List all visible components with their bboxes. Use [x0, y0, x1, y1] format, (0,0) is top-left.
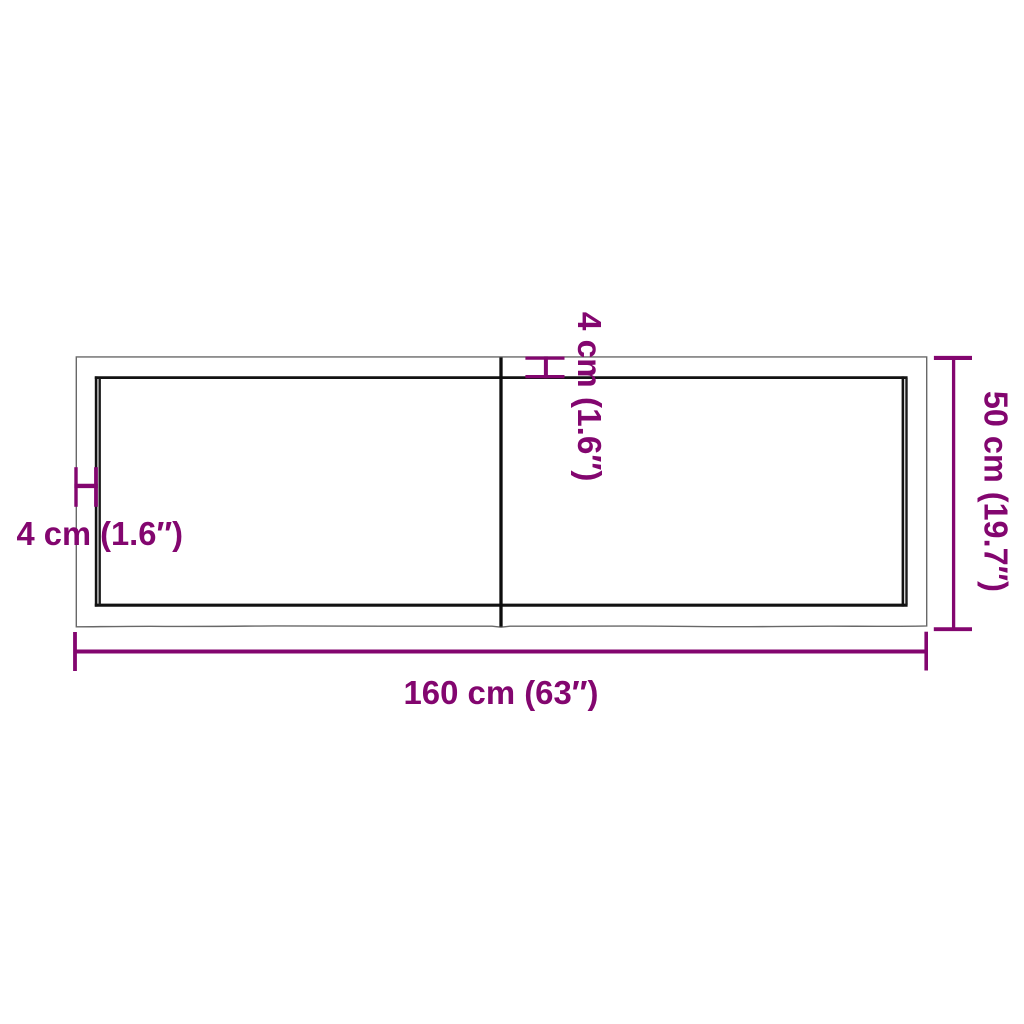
- svg-text:4 cm (1.6″): 4 cm (1.6″): [571, 312, 608, 481]
- svg-text:4 cm (1.6″): 4 cm (1.6″): [17, 515, 184, 552]
- svg-text:50 cm (19.7″): 50 cm (19.7″): [978, 391, 1015, 592]
- svg-text:160 cm (63″): 160 cm (63″): [404, 674, 599, 711]
